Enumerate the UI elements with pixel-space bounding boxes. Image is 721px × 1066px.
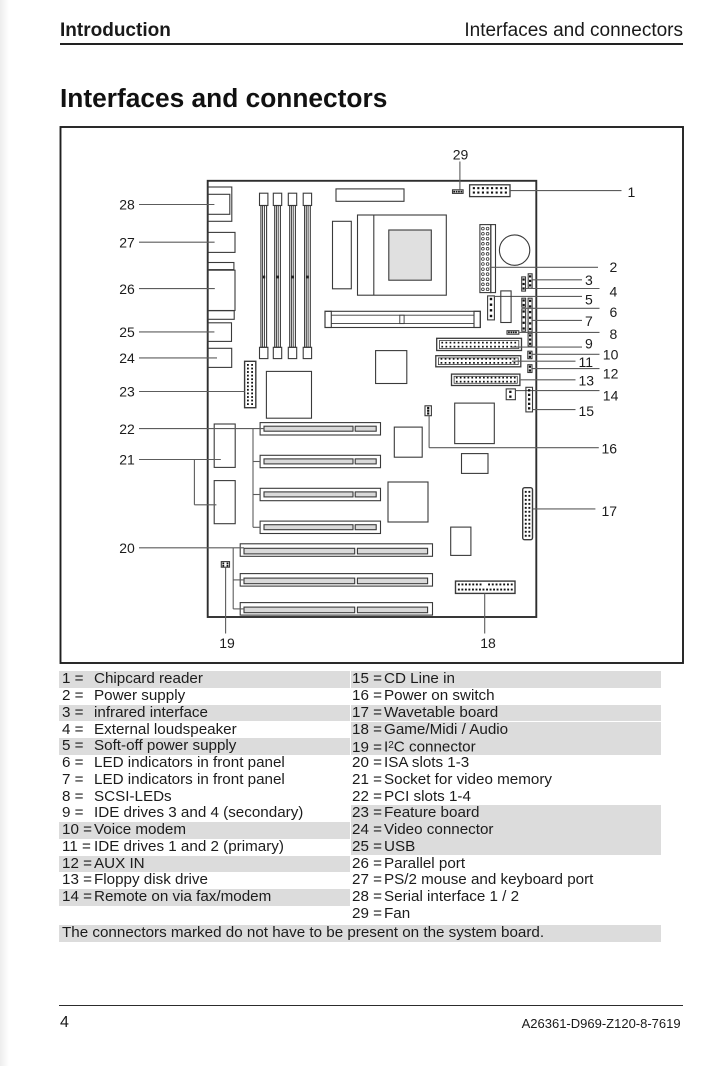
svg-text:10: 10 [603,346,619,362]
svg-text:5: 5 [585,291,593,307]
svg-text:22: 22 [119,421,135,437]
svg-text:29: 29 [453,147,469,163]
svg-text:6: 6 [610,304,618,320]
svg-text:18: 18 [480,635,496,651]
svg-text:24: 24 [119,350,135,366]
svg-text:27: 27 [119,234,135,250]
svg-text:25: 25 [119,324,135,340]
svg-text:12: 12 [603,366,619,382]
svg-text:28: 28 [119,197,135,213]
svg-text:9: 9 [585,336,593,352]
svg-text:1: 1 [628,184,636,200]
svg-text:23: 23 [119,384,135,400]
svg-text:8: 8 [610,326,618,342]
svg-text:16: 16 [602,440,618,456]
svg-text:17: 17 [602,503,618,519]
svg-text:3: 3 [585,272,593,288]
svg-text:19: 19 [219,635,235,651]
svg-text:26: 26 [119,281,135,297]
svg-text:20: 20 [119,540,135,556]
svg-text:2: 2 [610,259,618,275]
svg-text:7: 7 [585,313,593,329]
svg-text:21: 21 [119,452,135,468]
svg-text:11: 11 [579,354,594,370]
svg-text:15: 15 [579,403,595,419]
svg-text:4: 4 [610,284,618,300]
svg-text:14: 14 [603,387,619,403]
svg-text:13: 13 [579,373,595,389]
